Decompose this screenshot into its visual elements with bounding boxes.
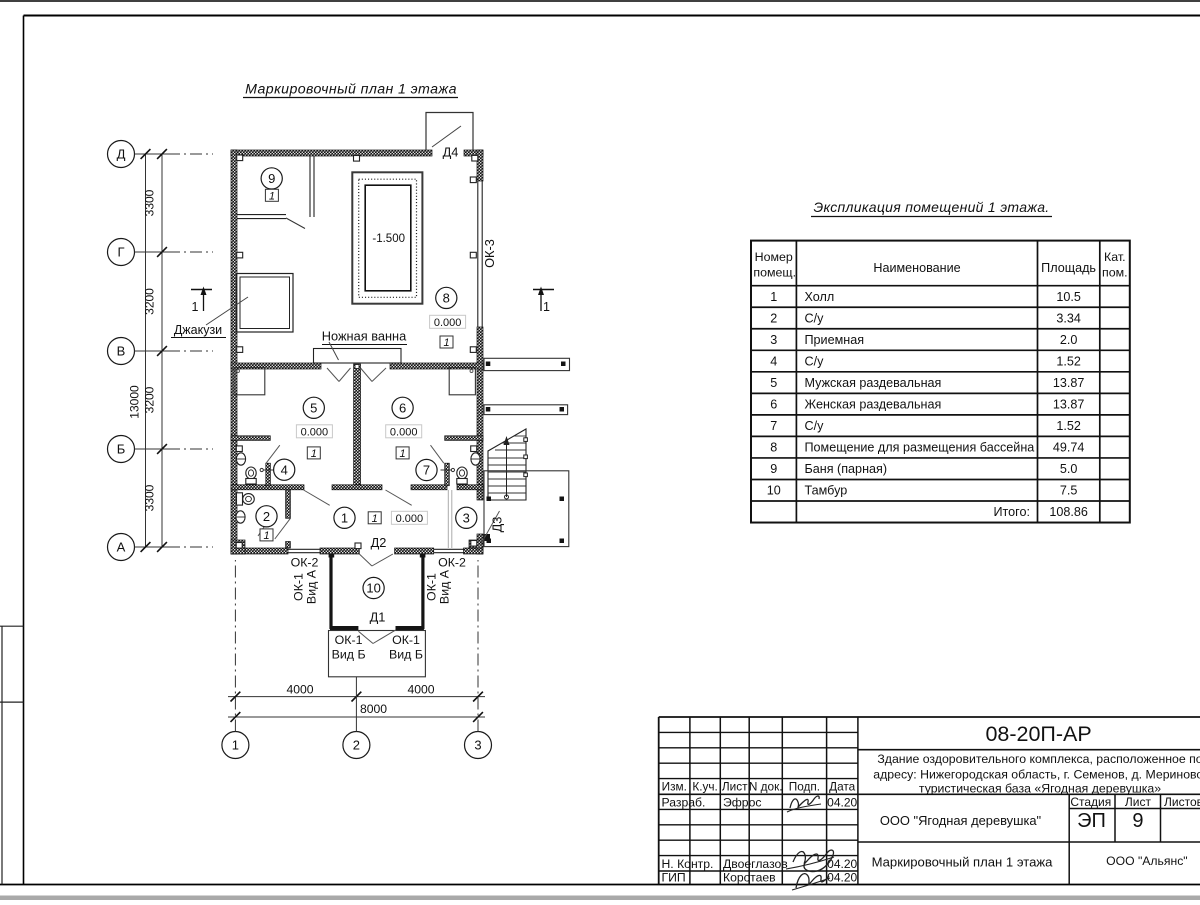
svg-text:5.0: 5.0 [1060, 462, 1078, 476]
svg-text:0.000: 0.000 [434, 317, 462, 329]
svg-text:3300: 3300 [143, 189, 157, 216]
svg-text:9: 9 [268, 171, 275, 186]
svg-text:Разраб.: Разраб. [662, 795, 706, 809]
svg-text:В: В [117, 344, 126, 359]
svg-text:Б: Б [117, 442, 126, 457]
svg-text:К.уч.: К.уч. [692, 780, 717, 794]
svg-text:ОК-1: ОК-1 [392, 633, 420, 647]
svg-text:Здание оздоровительного компле: Здание оздоровительного комплекса, распо… [877, 752, 1200, 766]
svg-text:04.20: 04.20 [827, 870, 857, 884]
svg-text:13.87: 13.87 [1053, 398, 1085, 412]
svg-text:ОК-3: ОК-3 [482, 239, 497, 268]
svg-text:1: 1 [543, 300, 550, 314]
svg-text:Д: Д [117, 147, 126, 162]
svg-text:Вид А: Вид А [438, 569, 452, 604]
svg-text:ГИП: ГИП [662, 870, 686, 884]
svg-text:Маркировочный план 1 этажа: Маркировочный план 1 этажа [245, 82, 457, 98]
svg-text:1: 1 [263, 530, 269, 542]
svg-text:8000: 8000 [360, 702, 387, 716]
svg-text:1: 1 [372, 513, 378, 525]
svg-text:Джакузи: Джакузи [174, 323, 222, 337]
svg-text:2: 2 [263, 509, 270, 524]
svg-text:адресу: Нижегородская область,: адресу: Нижегородская область, г. Семено… [873, 768, 1200, 782]
svg-text:7.5: 7.5 [1060, 484, 1078, 498]
svg-text:Д1: Д1 [370, 610, 386, 625]
svg-text:ОК-1: ОК-1 [425, 573, 439, 601]
svg-text:9: 9 [770, 462, 777, 476]
svg-text:8: 8 [770, 441, 777, 455]
svg-text:Помещение для размещения бассе: Помещение для размещения бассейна [805, 441, 1035, 455]
svg-text:4: 4 [770, 354, 777, 368]
svg-text:Женская раздевальная: Женская раздевальная [805, 398, 942, 412]
svg-text:1: 1 [311, 448, 317, 460]
svg-text:Подп.: Подп. [789, 780, 820, 794]
svg-text:пом.: пом. [1102, 266, 1128, 280]
svg-text:Площадь: Площадь [1041, 261, 1096, 275]
svg-text:6: 6 [399, 400, 406, 415]
svg-text:1: 1 [341, 510, 348, 525]
svg-text:Д3: Д3 [490, 517, 505, 533]
svg-text:4: 4 [281, 462, 288, 477]
svg-text:7: 7 [770, 419, 777, 433]
svg-text:Мужская раздевальная: Мужская раздевальная [805, 376, 942, 390]
svg-text:4000: 4000 [407, 682, 434, 696]
svg-text:Кат.: Кат. [1104, 250, 1126, 264]
svg-text:С/у: С/у [805, 311, 825, 325]
svg-text:5: 5 [770, 376, 777, 390]
svg-text:С/у: С/у [805, 419, 825, 433]
svg-text:Листов: Листов [1164, 795, 1200, 809]
svg-text:Приемная: Приемная [805, 333, 865, 347]
svg-text:1: 1 [400, 448, 406, 460]
svg-text:ОК-1: ОК-1 [292, 573, 306, 601]
svg-text:Вид Б: Вид Б [332, 648, 366, 662]
svg-text:Холл: Холл [805, 290, 835, 304]
svg-text:8: 8 [443, 291, 450, 306]
svg-text:ОК-1: ОК-1 [335, 633, 363, 647]
svg-text:Лист: Лист [1125, 795, 1152, 809]
svg-text:Д4: Д4 [443, 145, 459, 160]
svg-text:Стадия: Стадия [1070, 795, 1111, 809]
svg-text:Маркировочный план 1 этажа: Маркировочный план 1 этажа [872, 855, 1054, 870]
svg-text:2: 2 [770, 311, 777, 325]
svg-text:Вид А: Вид А [305, 569, 319, 604]
svg-text:ОК-2: ОК-2 [438, 556, 466, 570]
svg-text:1: 1 [770, 290, 777, 304]
svg-text:2: 2 [353, 738, 360, 753]
svg-text:13000: 13000 [128, 385, 142, 419]
svg-text:Ножная ванна: Ножная ванна [322, 329, 407, 344]
svg-text:1: 1 [443, 337, 449, 349]
svg-text:Лист: Лист [722, 780, 748, 794]
svg-text:С/у: С/у [805, 354, 825, 368]
svg-text:Двоеглазов: Двоеглазов [723, 857, 788, 871]
svg-text:ЭП: ЭП [1077, 810, 1106, 832]
svg-text:49.74: 49.74 [1053, 441, 1085, 455]
svg-text:Баня (парная): Баня (парная) [805, 462, 888, 476]
svg-text:10: 10 [767, 484, 781, 498]
svg-text:4000: 4000 [286, 682, 313, 696]
svg-text:3: 3 [770, 333, 777, 347]
svg-text:2.0: 2.0 [1060, 333, 1078, 347]
svg-text:1: 1 [192, 300, 199, 314]
svg-text:7: 7 [423, 463, 430, 478]
svg-text:0.000: 0.000 [396, 513, 424, 525]
svg-text:108.86: 108.86 [1049, 505, 1088, 519]
svg-text:3200: 3200 [143, 288, 157, 315]
svg-text:10.5: 10.5 [1056, 290, 1081, 304]
svg-text:1: 1 [232, 738, 239, 753]
svg-text:13.87: 13.87 [1053, 376, 1085, 390]
svg-text:Тамбур: Тамбур [805, 484, 848, 498]
svg-text:3200: 3200 [143, 386, 157, 413]
svg-text:9: 9 [1132, 810, 1143, 832]
svg-text:Коротаев: Коротаев [723, 870, 776, 884]
svg-text:08-20П-АР: 08-20П-АР [985, 722, 1091, 746]
svg-text:3.34: 3.34 [1056, 311, 1081, 325]
svg-text:0.000: 0.000 [301, 426, 329, 438]
svg-text:Д2: Д2 [371, 535, 387, 550]
svg-text:04.20: 04.20 [827, 795, 857, 809]
svg-text:помещ.: помещ. [753, 266, 796, 280]
svg-text:Дата: Дата [829, 780, 856, 794]
svg-text:Эфрос: Эфрос [723, 795, 761, 809]
svg-text:3300: 3300 [143, 484, 157, 511]
svg-text:1: 1 [269, 191, 275, 203]
svg-text:Экспликация помещений 1 этажа.: Экспликация помещений 1 этажа. [813, 199, 1049, 215]
svg-text:3: 3 [474, 738, 481, 753]
svg-text:туристическая база «Ягодная де: туристическая база «Ягодная деревушка» [919, 781, 1161, 795]
svg-text:-1.500: -1.500 [372, 233, 405, 245]
svg-text:10: 10 [366, 581, 380, 596]
svg-text:ООО "Альянс": ООО "Альянс" [1106, 854, 1188, 868]
svg-text:Наименование: Наименование [873, 261, 960, 275]
svg-text:Изм.: Изм. [662, 780, 687, 794]
svg-text:N док.: N док. [749, 780, 783, 794]
svg-text:Н. Контр.: Н. Контр. [662, 857, 714, 871]
svg-text:А: А [117, 540, 126, 555]
svg-text:3: 3 [463, 510, 470, 525]
svg-text:ООО "Ягодная деревушка": ООО "Ягодная деревушка" [880, 813, 1042, 828]
svg-text:Номер: Номер [755, 250, 793, 264]
svg-text:1.52: 1.52 [1056, 354, 1081, 368]
svg-text:0.000: 0.000 [390, 426, 418, 438]
svg-text:5: 5 [310, 400, 317, 415]
svg-text:Г: Г [117, 245, 124, 260]
svg-text:Вид Б: Вид Б [389, 648, 423, 662]
svg-text:Итого:: Итого: [993, 505, 1030, 519]
svg-text:6: 6 [770, 398, 777, 412]
svg-text:ОК-2: ОК-2 [291, 556, 319, 570]
svg-text:1.52: 1.52 [1056, 419, 1081, 433]
